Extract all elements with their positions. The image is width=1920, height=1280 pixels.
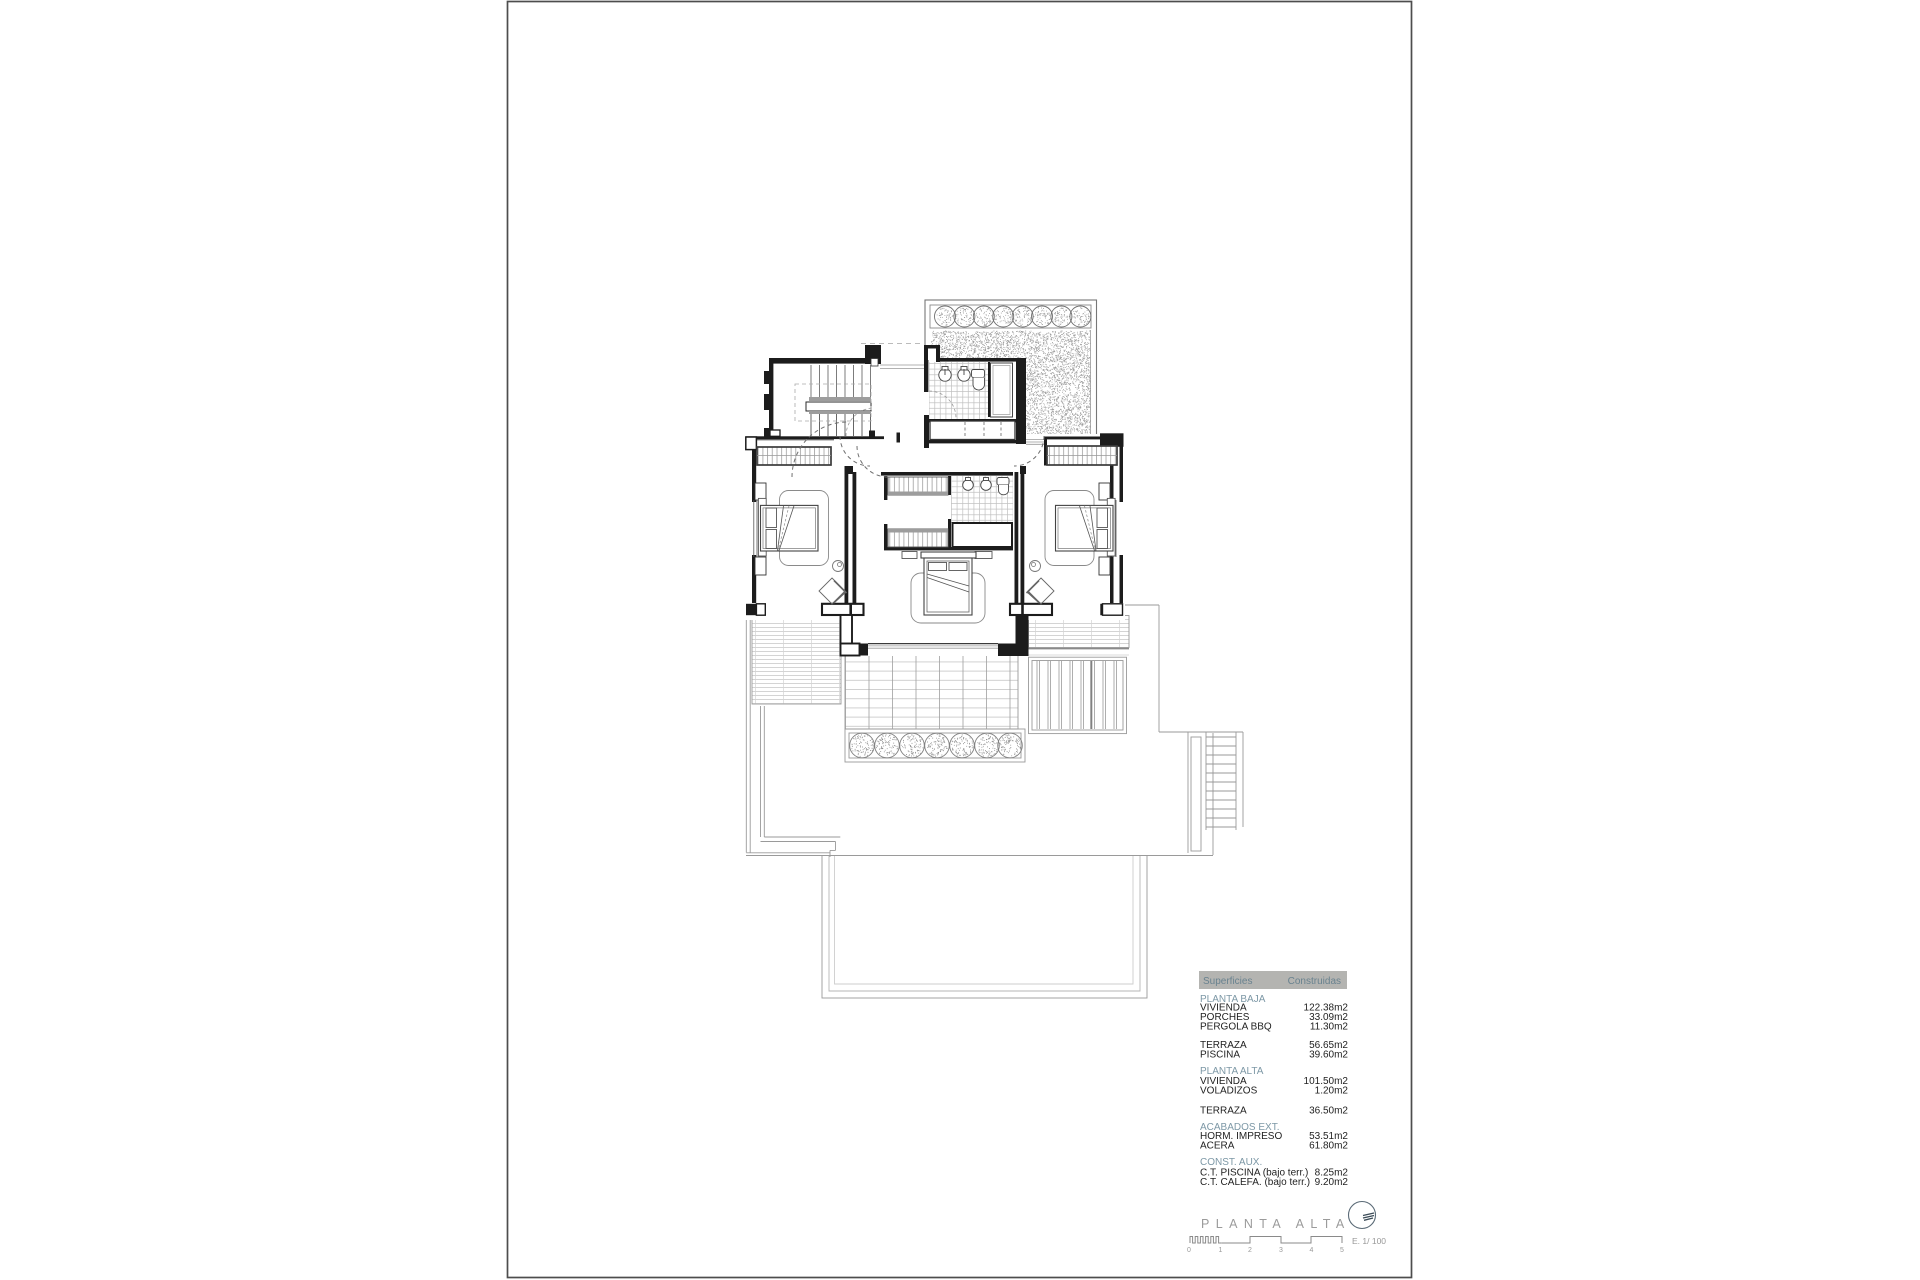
svg-text:Superficies: Superficies xyxy=(1203,976,1252,987)
svg-text:9.20m2: 9.20m2 xyxy=(1315,1177,1349,1188)
svg-text:36.50m2: 36.50m2 xyxy=(1309,1106,1348,1117)
svg-text:0: 0 xyxy=(1187,1247,1191,1254)
svg-text:C.T. CALEFA. (bajo terr.): C.T. CALEFA. (bajo terr.) xyxy=(1200,1177,1310,1188)
svg-text:4: 4 xyxy=(1310,1247,1314,1254)
svg-text:Construidas: Construidas xyxy=(1288,976,1341,987)
svg-text:2: 2 xyxy=(1248,1247,1252,1254)
svg-text:61.80m2: 61.80m2 xyxy=(1309,1141,1348,1152)
svg-text:11.30m2: 11.30m2 xyxy=(1310,1022,1349,1033)
svg-text:TERRAZA: TERRAZA xyxy=(1200,1106,1247,1117)
svg-text:3: 3 xyxy=(1279,1247,1283,1254)
svg-text:5: 5 xyxy=(1340,1247,1344,1254)
svg-text:1.20m2: 1.20m2 xyxy=(1315,1086,1349,1097)
svg-text:PLANTA ALTA: PLANTA ALTA xyxy=(1201,1217,1351,1231)
svg-text:PERGOLA BBQ: PERGOLA BBQ xyxy=(1200,1022,1272,1033)
svg-text:VOLADIZOS: VOLADIZOS xyxy=(1200,1086,1258,1097)
svg-text:39.60m2: 39.60m2 xyxy=(1309,1050,1348,1061)
svg-text:ACERA: ACERA xyxy=(1200,1141,1235,1152)
svg-text:1: 1 xyxy=(1219,1247,1223,1254)
svg-text:PISCINA: PISCINA xyxy=(1200,1050,1240,1061)
svg-text:CONST. AUX.: CONST. AUX. xyxy=(1200,1157,1262,1168)
svg-text:E. 1/ 100: E. 1/ 100 xyxy=(1352,1236,1386,1246)
